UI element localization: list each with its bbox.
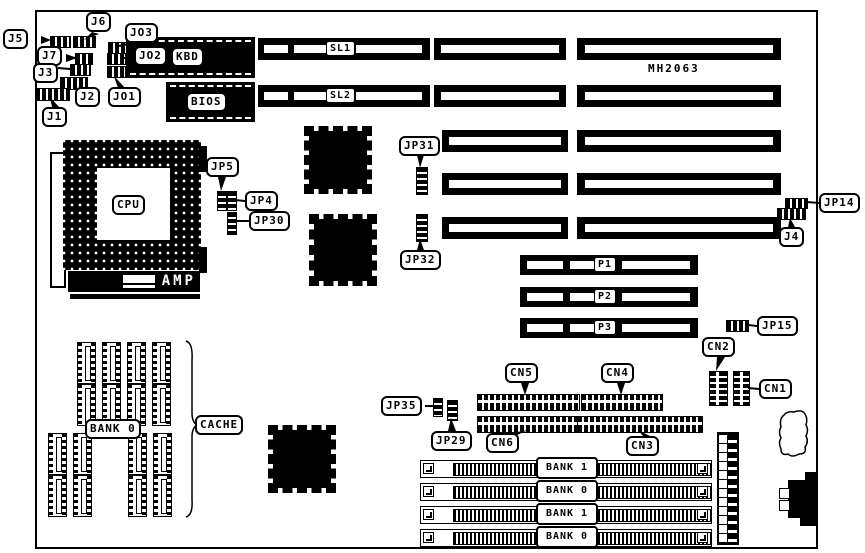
label-kbd: KBD (171, 47, 204, 67)
leader-j4 (788, 218, 795, 227)
leader-j6 (84, 32, 99, 40)
label-simm-bank-1: BANK 1 (536, 457, 598, 479)
label-jp15: JP15 (757, 316, 798, 336)
leader-j5-arrow (41, 36, 51, 44)
label-cn6: CN6 (486, 433, 519, 453)
label-jo1: JO1 (108, 87, 141, 107)
label-jo3: JO3 (125, 23, 158, 43)
battery-outline (780, 411, 808, 456)
label-j6: J6 (86, 12, 111, 32)
label-cn4: CN4 (601, 363, 634, 383)
leader-j1 (50, 97, 59, 107)
leader-jp5 (218, 177, 226, 191)
leader-jp31 (417, 155, 424, 168)
leader-cn1 (748, 388, 759, 389)
leader-j3 (58, 68, 70, 69)
slot-label-p1: P1 (594, 257, 616, 272)
leader-jp14 (807, 202, 819, 203)
label-j1: J1 (42, 107, 67, 127)
leader-jp29 (448, 418, 456, 431)
label-jp32: JP32 (400, 250, 441, 270)
leader-lines-layer (0, 0, 865, 553)
slot-label-p2: P2 (594, 289, 616, 304)
leader-cn4 (617, 383, 625, 395)
leader-jp32 (417, 239, 424, 250)
label-simm-bank-1b: BANK 1 (536, 503, 598, 525)
leader-j7-arrow (66, 54, 77, 62)
label-cpu: CPU (112, 195, 145, 215)
label-j4: J4 (779, 227, 804, 247)
label-jp5: JP5 (206, 157, 239, 177)
slot-label-p3: P3 (594, 320, 616, 335)
label-cn2: CN2 (702, 337, 735, 357)
motherboard-diagram: J5 J6 JO3 J7 JO2 J3 J2 JO1 J1 KBD BIOS S… (0, 0, 865, 553)
label-bios: BIOS (186, 92, 227, 112)
label-cn5: CN5 (505, 363, 538, 383)
leader-jp4 (235, 200, 245, 201)
label-jo2: JO2 (134, 46, 167, 66)
label-jp4: JP4 (245, 191, 278, 211)
leader-cn2 (716, 357, 725, 371)
leader-jo3 (119, 43, 133, 46)
leader-cn5 (521, 383, 529, 395)
slot-label-sl2: SL2 (326, 88, 355, 103)
label-j2: J2 (75, 87, 100, 107)
label-cache-bank0: BANK 0 (85, 419, 141, 439)
label-cn3: CN3 (626, 436, 659, 456)
label-jp35: JP35 (381, 396, 422, 416)
label-cn1: CN1 (759, 379, 792, 399)
label-jp29: JP29 (431, 431, 472, 451)
label-j5: J5 (3, 29, 28, 49)
label-jp30: JP30 (249, 211, 290, 231)
label-jp31: JP31 (399, 136, 440, 156)
label-simm-bank-0b: BANK 0 (536, 526, 598, 548)
label-j3: J3 (33, 63, 58, 83)
leader-jp15 (748, 325, 757, 326)
slot-label-sl1: SL1 (326, 41, 355, 56)
label-simm-bank-0: BANK 0 (536, 480, 598, 502)
label-jp14: JP14 (819, 193, 860, 213)
label-cache: CACHE (195, 415, 243, 435)
